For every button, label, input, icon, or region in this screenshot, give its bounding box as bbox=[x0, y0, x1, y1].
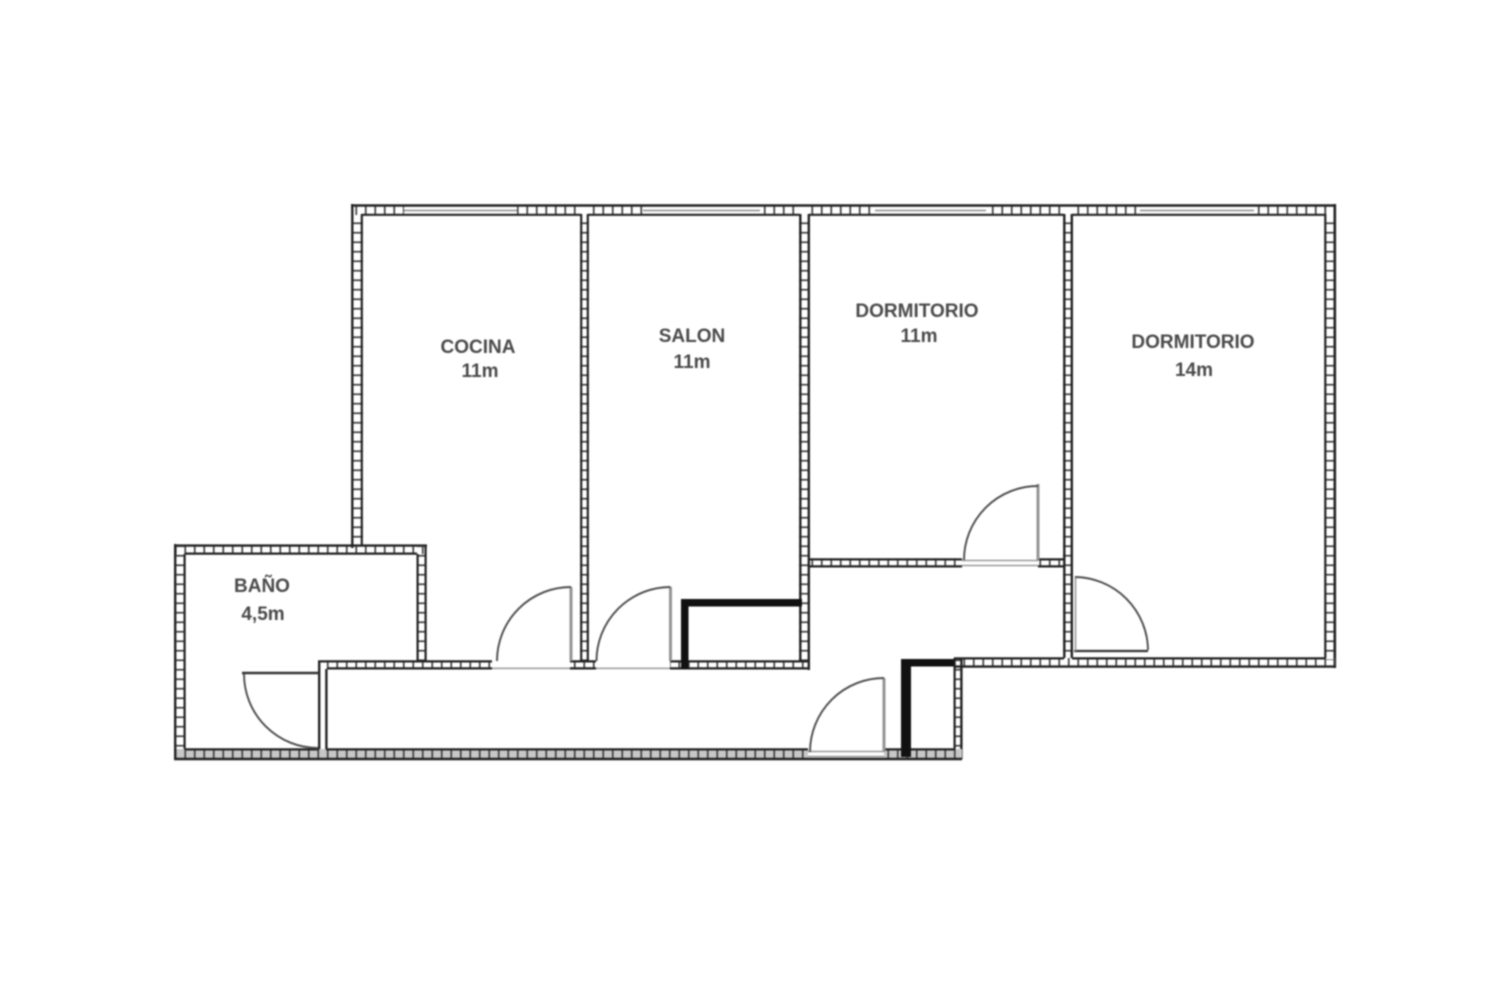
svg-text:DORMITORIO: DORMITORIO bbox=[855, 301, 978, 322]
svg-text:SALON: SALON bbox=[659, 326, 726, 347]
svg-text:14m: 14m bbox=[1175, 360, 1213, 381]
svg-text:COCINA: COCINA bbox=[441, 337, 516, 358]
svg-text:DORMITORIO: DORMITORIO bbox=[1131, 332, 1254, 353]
svg-text:BAÑO: BAÑO bbox=[234, 575, 290, 597]
svg-text:11m: 11m bbox=[462, 361, 499, 382]
svg-text:11m: 11m bbox=[674, 352, 711, 373]
svg-text:4,5m: 4,5m bbox=[241, 604, 284, 625]
svg-text:11m: 11m bbox=[901, 326, 938, 347]
